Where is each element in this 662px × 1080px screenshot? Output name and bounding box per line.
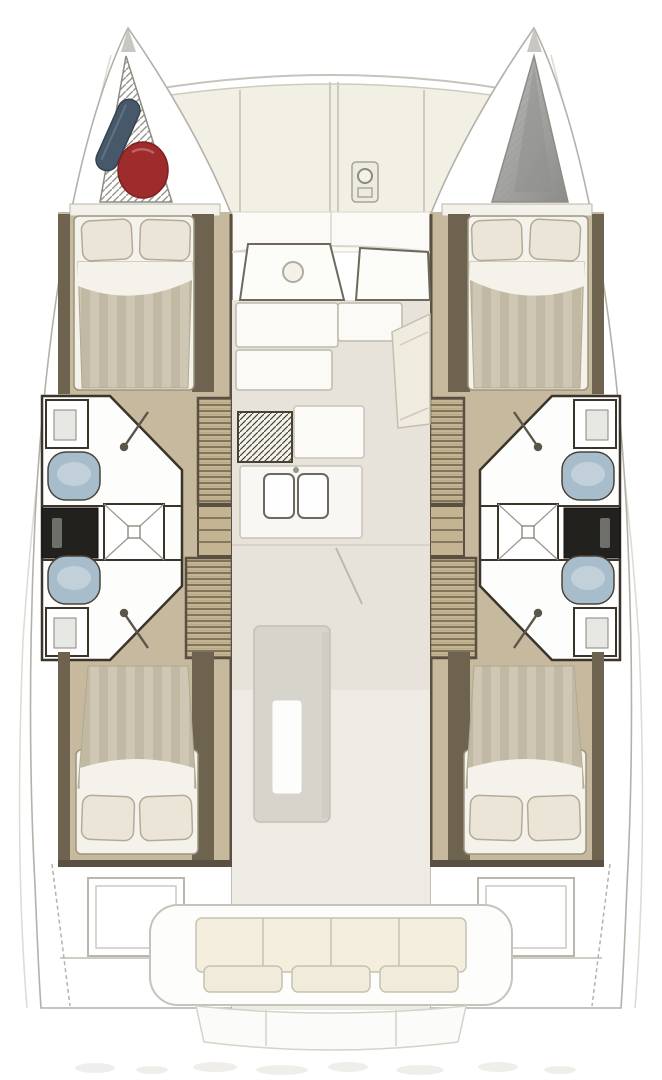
seat-cushion xyxy=(380,966,458,992)
galley xyxy=(238,406,364,538)
catamaran-floorplan xyxy=(0,0,662,1080)
swim-platform xyxy=(196,1006,466,1050)
chart-seat xyxy=(392,314,430,428)
aft-cockpit-bench xyxy=(150,905,512,1005)
faucet xyxy=(293,467,299,473)
galley-sink xyxy=(264,474,294,518)
floorplan-svg xyxy=(0,0,662,1080)
salon xyxy=(232,244,430,1010)
watermark-smudge xyxy=(75,1062,576,1075)
anchor-windlass-icon xyxy=(352,162,378,202)
watch-seat-right xyxy=(356,248,430,300)
stove-hatch xyxy=(238,412,292,462)
seat-cupholder xyxy=(283,262,303,282)
galley-counter xyxy=(294,406,364,458)
table-leaf xyxy=(272,700,302,794)
galley-sink xyxy=(298,474,328,518)
dining-table xyxy=(254,626,330,822)
seat-cushion xyxy=(292,966,370,992)
seat-cushion xyxy=(204,966,282,992)
